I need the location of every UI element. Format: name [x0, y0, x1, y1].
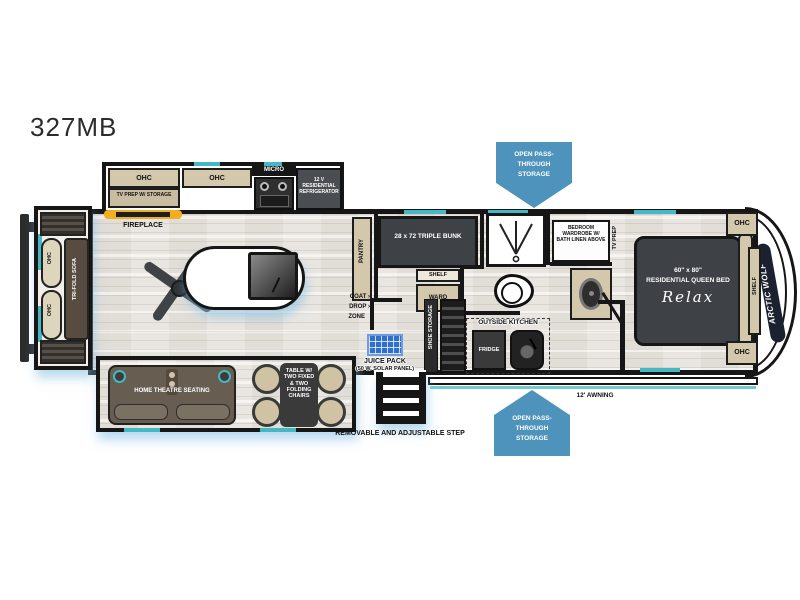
toilet-bowl [501, 282, 523, 304]
awning-label: 12' AWNING [560, 392, 630, 399]
window-strip [640, 368, 680, 372]
overhead-cabinet: OHC [726, 341, 758, 365]
window-strip [124, 428, 160, 432]
wall [546, 213, 550, 265]
bath-sink-icon [579, 278, 603, 310]
bunk-label: 28 x 72 TRIPLE BUNK [391, 233, 465, 240]
bedroom-wardrobe-label: BEDROOM WARDROBE W/ BATH LINEN ABOVE [556, 226, 606, 243]
ohc-label: OHC [184, 175, 250, 183]
fireplace-insert [116, 212, 170, 217]
burner-icon [260, 182, 269, 191]
window-strip [194, 162, 220, 166]
bedroom-wardrobe: BEDROOM WARDROBE W/ BATH LINEN ABOVE [552, 220, 610, 262]
awning-shade [430, 386, 756, 389]
drop-line: DROP › [336, 302, 370, 312]
coat-drop-zone: COAT › DROP › ZONE [336, 292, 370, 323]
micro-label: MICRO [252, 167, 296, 174]
overhead-cabinet: OHC [182, 168, 252, 188]
callout-open-pass-through-storage-top: OPEN PASS-THROUGH STORAGE [496, 142, 572, 208]
removable-step [376, 372, 426, 424]
outside-kitchen-label: OUTSIDE KITCHEN [460, 319, 556, 326]
wall [620, 300, 625, 372]
wall [374, 298, 402, 302]
ohc-label: OHC [728, 349, 756, 357]
tv-prep-cabinet: TV PREP W/ STORAGE [108, 188, 180, 208]
coat-line: COAT › [336, 292, 370, 302]
dining-table: TABLE W/ TWO FIXED & TWO FOLDING CHAIRS [280, 363, 318, 427]
tv-prep-label: TV PREP W/ STORAGE [110, 193, 178, 199]
bed-brand-label: Relax [637, 289, 739, 306]
removable-step-label: REMOVABLE AND ADJUSTABLE STEP [330, 430, 470, 438]
end-table [40, 340, 86, 364]
shelf-label: SHELF [752, 277, 758, 295]
window-strip [404, 210, 446, 214]
burner-icon [278, 182, 287, 191]
coat-label: COAT [350, 294, 367, 300]
outside-sink-icon [510, 330, 544, 370]
ohc-label: OHC [110, 175, 178, 183]
bed-size-label: 60" x 80" [637, 267, 739, 274]
shelf-label: SHELF [418, 272, 458, 278]
range-stove-icon [254, 177, 294, 210]
zone-label: ZONE [348, 314, 365, 320]
arrow-right-icon: › [368, 294, 370, 300]
kitchen-slide: OHC TV PREP W/ STORAGE OHC MICRO 12 V RE… [102, 162, 344, 214]
console-cupholder [169, 372, 175, 378]
queen-bed: 60" x 80" RESIDENTIAL QUEEN BED Relax [634, 236, 742, 346]
ohc-label: OHC [47, 252, 53, 264]
arrow-right-icon: › [368, 304, 370, 310]
wall [458, 311, 520, 315]
oven-icon [260, 195, 289, 207]
fireplace-icon [104, 210, 182, 219]
shelf: SHELF [416, 269, 460, 282]
dining-chair [252, 364, 282, 394]
overhead-cabinet: OHC [108, 168, 180, 188]
dining-chair [252, 397, 282, 427]
shower-icon [489, 216, 543, 264]
faucet-icon [529, 338, 537, 349]
overhead-cabinet: OHC [41, 290, 62, 340]
seat-cushion [176, 404, 230, 420]
juice-pack-label: JUICE PACK [338, 358, 432, 366]
cupholder-icon [113, 370, 126, 383]
shower [486, 213, 546, 267]
drop-label: DROP [349, 304, 366, 310]
floorplan-327mb: 327MB OPEN PASS-THROUGH STORAGE ARCTIC W… [0, 0, 800, 600]
sofa-label: TRI-FOLD SOFA [72, 258, 78, 300]
theatre-label: HOME THEATRE SEATING [110, 388, 234, 395]
zone-line: ZONE [336, 312, 370, 322]
dinette: TABLE W/ TWO FIXED & TWO FOLDING CHAIRS [246, 360, 352, 430]
bed-type-label: RESIDENTIAL QUEEN BED [637, 277, 739, 284]
end-table [40, 212, 86, 236]
island-sink [248, 252, 298, 300]
table-label: TABLE W/ TWO FIXED & TWO FOLDING CHAIRS [282, 368, 316, 400]
wall [370, 298, 374, 330]
cupholder-icon [218, 370, 231, 383]
kitchen-island [183, 246, 305, 310]
microwave: MICRO [252, 166, 296, 176]
callout-bottom-label: OPEN PASS-THROUGH STORAGE [504, 414, 560, 443]
solar-panel-icon [367, 334, 403, 356]
fireplace-label: FIREPLACE [104, 222, 182, 230]
home-theatre-seating: HOME THEATRE SEATING [108, 365, 236, 425]
wall [462, 265, 484, 269]
wall [550, 262, 612, 266]
callout-top-label: OPEN PASS-THROUGH STORAGE [506, 150, 562, 179]
living-slide: HOME THEATRE SEATING TABLE W/ TWO FIXED … [96, 356, 356, 432]
entry-steps [440, 299, 466, 373]
pantry: PANTRY [352, 217, 372, 301]
dining-chair [316, 397, 346, 427]
sofa-slide: OHC OHC TRI-FOLD SOFA [34, 206, 92, 370]
refrigerator-label: 12 V RESIDENTIAL REFRIGERATOR [299, 178, 339, 195]
ohc-label: OHC [47, 304, 53, 316]
overhead-cabinet: OHC [41, 238, 62, 288]
console-cupholder [169, 381, 175, 387]
wall [480, 213, 484, 269]
outside-fridge-label: FRIDGE [474, 347, 504, 353]
page-title: 327MB [30, 112, 117, 143]
triple-bunk: 28 x 72 TRIPLE BUNK [378, 216, 478, 268]
rear-bumper [20, 214, 29, 362]
overhead-cabinet: OHC [726, 212, 758, 236]
drain-icon [589, 291, 594, 296]
front-shelf: SHELF [748, 247, 761, 335]
callout-open-pass-through-storage-bottom: OPEN PASS-THROUGH STORAGE [494, 390, 570, 456]
outside-fridge: FRIDGE [472, 330, 506, 370]
shoe-storage-label: SHOE STORAGE [428, 305, 434, 349]
window-strip [634, 210, 676, 214]
tv-prep-label: TV PREP [612, 226, 618, 250]
refrigerator: 12 V RESIDENTIAL REFRIGERATOR [296, 168, 342, 210]
seat-cushion [114, 404, 168, 420]
awning-rail [428, 377, 758, 385]
ohc-label: OHC [728, 220, 756, 228]
pantry-label: PANTRY [359, 239, 366, 263]
faucet-icon [272, 277, 281, 292]
tri-fold-sofa: TRI-FOLD SOFA [64, 238, 89, 340]
